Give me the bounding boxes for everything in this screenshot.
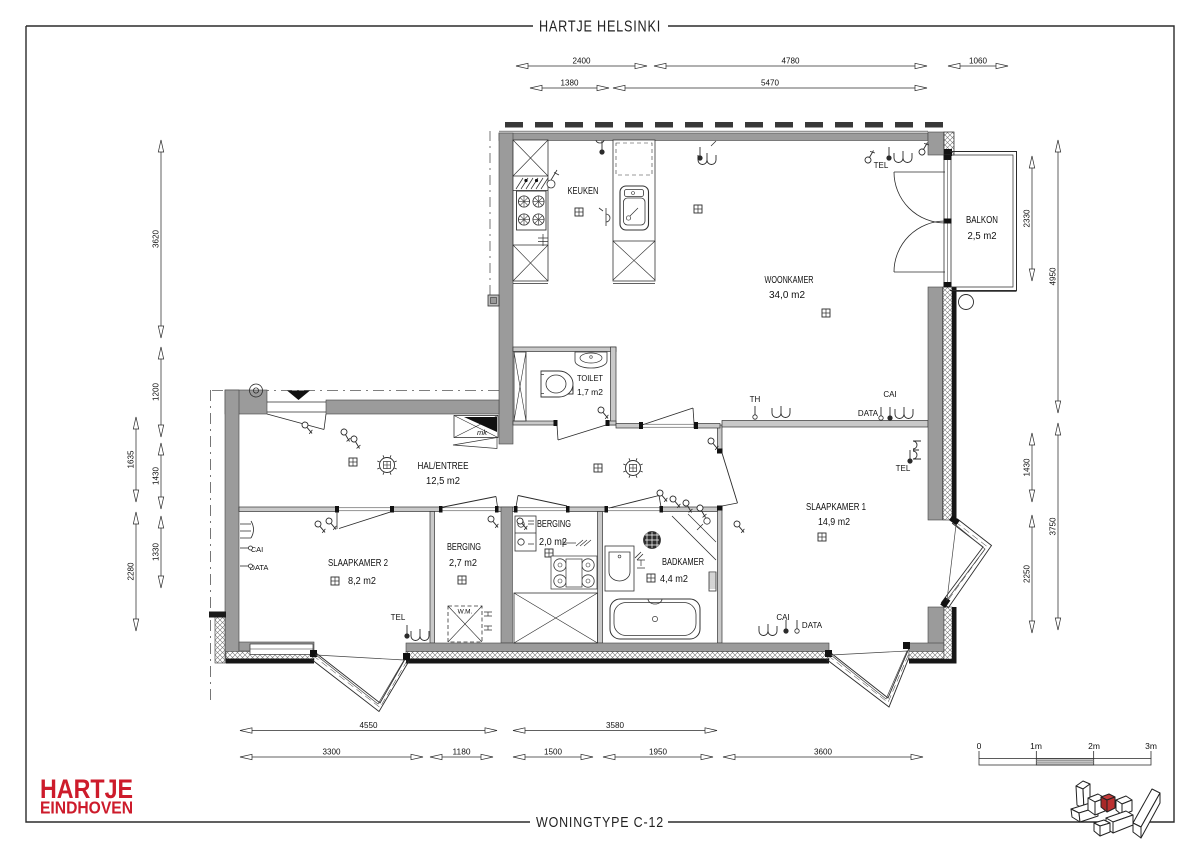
- svg-text:1500: 1500: [544, 748, 563, 757]
- svg-text:4780: 4780: [782, 57, 801, 66]
- svg-text:HAL/ENTREE: HAL/ENTREE: [418, 460, 469, 472]
- svg-text:3750: 3750: [1049, 517, 1058, 536]
- svg-text:BERGING: BERGING: [537, 518, 571, 530]
- svg-text:1m: 1m: [1030, 741, 1042, 751]
- svg-text:TEL: TEL: [874, 161, 889, 170]
- svg-text:1430: 1430: [1023, 458, 1032, 477]
- svg-text:mk: mk: [477, 428, 488, 437]
- svg-text:3300: 3300: [323, 748, 342, 757]
- svg-text:KEUKEN: KEUKEN: [568, 185, 599, 197]
- svg-text:HARTJE HELSINKI: HARTJE HELSINKI: [539, 19, 661, 36]
- svg-text:BALKON: BALKON: [966, 214, 998, 226]
- svg-text:CAI: CAI: [776, 613, 789, 622]
- svg-text:2330: 2330: [1023, 209, 1032, 228]
- svg-text:1635: 1635: [127, 450, 136, 469]
- svg-text:CAI: CAI: [883, 390, 896, 399]
- svg-text:SLAAPKAMER 1: SLAAPKAMER 1: [806, 501, 866, 513]
- svg-text:1950: 1950: [649, 748, 668, 757]
- svg-text:1430: 1430: [152, 466, 161, 485]
- svg-text:0: 0: [977, 741, 982, 751]
- svg-text:3620: 3620: [152, 229, 161, 248]
- svg-text:3m: 3m: [1145, 741, 1157, 751]
- svg-text:BADKAMER: BADKAMER: [662, 556, 704, 568]
- svg-text:BERGING: BERGING: [447, 541, 481, 553]
- svg-text:TH: TH: [750, 395, 761, 404]
- svg-text:2,5 m2: 2,5 m2: [968, 231, 997, 242]
- svg-text:TEL: TEL: [896, 464, 911, 473]
- svg-text:1330: 1330: [152, 542, 161, 561]
- svg-text:1180: 1180: [453, 748, 472, 757]
- svg-text:CAI: CAI: [251, 545, 264, 554]
- svg-text:WOONKAMER: WOONKAMER: [765, 274, 814, 286]
- svg-text:12,5 m2: 12,5 m2: [426, 476, 460, 487]
- svg-text:34,0 m2: 34,0 m2: [769, 290, 805, 301]
- svg-text:1200: 1200: [152, 382, 161, 401]
- svg-text:3600: 3600: [814, 748, 833, 757]
- svg-text:2400: 2400: [573, 57, 592, 66]
- svg-text:TEL: TEL: [391, 613, 406, 622]
- svg-text:1380: 1380: [561, 79, 580, 88]
- svg-text:TOILET: TOILET: [577, 373, 603, 383]
- svg-text:5470: 5470: [761, 79, 780, 88]
- svg-text:DATA: DATA: [858, 409, 879, 418]
- svg-text:4,4 m2: 4,4 m2: [660, 574, 688, 585]
- svg-text:4950: 4950: [1049, 267, 1058, 286]
- svg-text:2250: 2250: [1023, 564, 1032, 583]
- svg-text:EINDHOVEN: EINDHOVEN: [40, 798, 133, 818]
- svg-text:14,9 m2: 14,9 m2: [818, 517, 850, 528]
- svg-text:1060: 1060: [969, 57, 988, 66]
- svg-text:2280: 2280: [127, 562, 136, 581]
- svg-text:8,2 m2: 8,2 m2: [348, 576, 376, 587]
- svg-text:2m: 2m: [1088, 741, 1100, 751]
- svg-text:2,7 m2: 2,7 m2: [449, 558, 477, 569]
- svg-text:1,7 m2: 1,7 m2: [577, 387, 603, 397]
- svg-text:WONINGTYPE C-12: WONINGTYPE C-12: [536, 814, 664, 831]
- svg-text:DATA: DATA: [250, 563, 269, 572]
- svg-text:W.M.: W.M.: [458, 609, 473, 616]
- svg-text:SLAAPKAMER 2: SLAAPKAMER 2: [328, 557, 388, 569]
- svg-text:3580: 3580: [606, 721, 625, 730]
- svg-text:DATA: DATA: [802, 621, 823, 630]
- svg-text:4550: 4550: [360, 721, 379, 730]
